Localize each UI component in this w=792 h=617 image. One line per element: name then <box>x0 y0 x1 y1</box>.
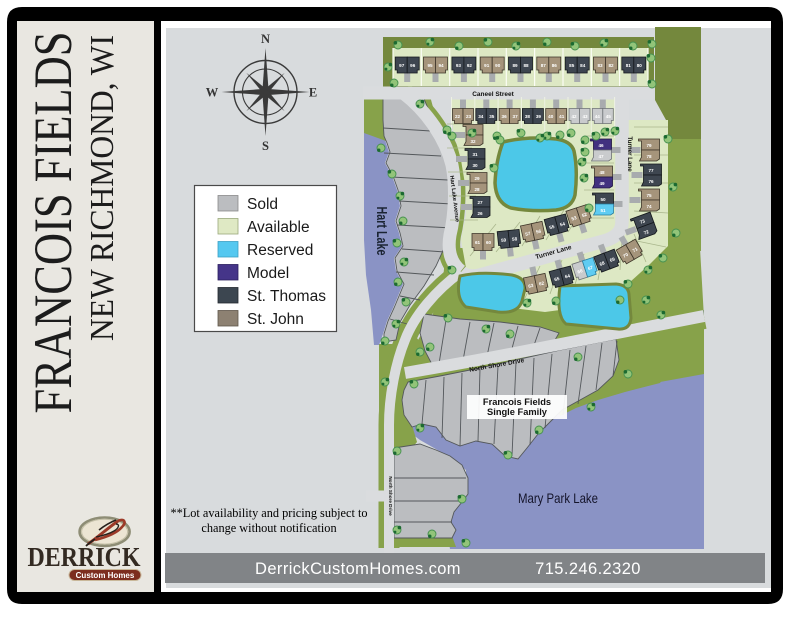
svg-text:76: 76 <box>648 179 654 184</box>
svg-text:DerrickCustomHomes.com: DerrickCustomHomes.com <box>255 560 461 578</box>
svg-text:48: 48 <box>599 170 605 175</box>
svg-text:86: 86 <box>552 63 558 68</box>
svg-text:29: 29 <box>474 176 480 181</box>
svg-text:Francois Fields: Francois Fields <box>483 397 551 407</box>
svg-text:Model: Model <box>247 265 289 282</box>
svg-text:41: 41 <box>559 114 565 119</box>
svg-text:27: 27 <box>477 200 483 205</box>
svg-text:47: 47 <box>598 154 604 159</box>
svg-text:37: 37 <box>513 114 519 119</box>
svg-text:58: 58 <box>512 236 518 242</box>
svg-text:51: 51 <box>600 208 606 213</box>
svg-text:Sold: Sold <box>247 196 278 213</box>
svg-text:Caneel Street: Caneel Street <box>472 91 514 98</box>
svg-text:45: 45 <box>606 114 612 119</box>
svg-text:59: 59 <box>501 237 507 243</box>
svg-text:91: 91 <box>484 63 490 68</box>
svg-text:61: 61 <box>475 240 481 245</box>
svg-text:23: 23 <box>466 114 472 119</box>
svg-text:32: 32 <box>470 139 476 144</box>
svg-text:39: 39 <box>536 114 542 119</box>
svg-text:81: 81 <box>626 63 632 68</box>
svg-text:N: N <box>261 32 270 46</box>
svg-text:49: 49 <box>599 181 605 186</box>
svg-text:78: 78 <box>646 154 652 159</box>
svg-text:87: 87 <box>541 63 547 68</box>
svg-text:NEW RICHMOND, WI: NEW RICHMOND, WI <box>84 35 121 341</box>
svg-text:North Shore Drive: North Shore Drive <box>388 476 393 516</box>
svg-text:E: E <box>309 86 317 100</box>
svg-text:22: 22 <box>455 114 461 119</box>
svg-text:96: 96 <box>410 63 416 68</box>
svg-text:74: 74 <box>646 204 652 209</box>
svg-text:38: 38 <box>525 114 531 119</box>
svg-text:715.246.2320: 715.246.2320 <box>535 560 641 578</box>
svg-text:77: 77 <box>648 168 654 173</box>
svg-text:St. John: St. John <box>247 311 304 328</box>
svg-text:44: 44 <box>595 114 601 119</box>
svg-text:DERRICK: DERRICK <box>28 542 141 572</box>
svg-text:**Lot availability and pricing: **Lot availability and pricing subject t… <box>170 506 367 520</box>
svg-text:FRANCOIS FIELDS: FRANCOIS FIELDS <box>23 32 83 414</box>
svg-text:75: 75 <box>646 193 652 198</box>
svg-text:26: 26 <box>477 211 483 216</box>
svg-text:80: 80 <box>637 63 643 68</box>
svg-text:46: 46 <box>598 143 604 148</box>
svg-text:Available: Available <box>247 219 310 236</box>
svg-text:Single Family: Single Family <box>487 407 548 417</box>
svg-text:Reserved: Reserved <box>247 242 313 259</box>
svg-text:Mary Park Lake: Mary Park Lake <box>518 490 598 506</box>
svg-text:30: 30 <box>472 163 478 168</box>
svg-text:88: 88 <box>523 63 529 68</box>
svg-text:95: 95 <box>427 63 433 68</box>
svg-text:Custom Homes: Custom Homes <box>76 571 135 580</box>
svg-text:36: 36 <box>502 114 508 119</box>
svg-text:change without notification: change without notification <box>201 521 336 535</box>
svg-text:97: 97 <box>399 63 405 68</box>
svg-text:Turner Lane: Turner Lane <box>626 136 633 172</box>
svg-text:40: 40 <box>548 114 554 119</box>
svg-text:79: 79 <box>646 143 652 148</box>
svg-text:89: 89 <box>512 63 518 68</box>
svg-text:35: 35 <box>489 114 495 119</box>
svg-text:85: 85 <box>569 63 575 68</box>
svg-text:W: W <box>206 86 219 100</box>
svg-text:42: 42 <box>571 114 577 119</box>
svg-text:50: 50 <box>600 197 606 202</box>
svg-text:94: 94 <box>438 63 444 68</box>
svg-text:83: 83 <box>597 63 603 68</box>
svg-text:84: 84 <box>580 63 586 68</box>
svg-text:Hart Lake: Hart Lake <box>373 207 390 256</box>
svg-text:60: 60 <box>486 240 492 245</box>
svg-text:28: 28 <box>474 187 480 192</box>
svg-text:34: 34 <box>478 114 484 119</box>
svg-text:82: 82 <box>608 63 614 68</box>
svg-text:90: 90 <box>495 63 501 68</box>
svg-text:92: 92 <box>467 63 473 68</box>
svg-text:93: 93 <box>456 63 462 68</box>
svg-text:S: S <box>262 139 269 153</box>
svg-text:31: 31 <box>472 152 478 157</box>
svg-text:St. Thomas: St. Thomas <box>247 288 326 305</box>
svg-text:43: 43 <box>582 114 588 119</box>
